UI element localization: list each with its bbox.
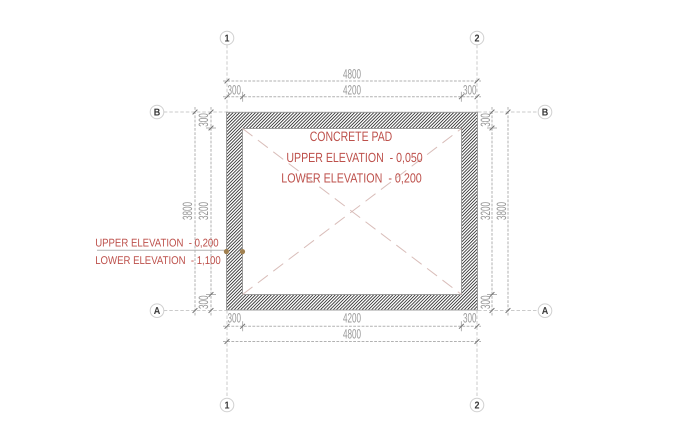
svg-text:LOWER ELEVATION - 0,200: LOWER ELEVATION - 0,200 (281, 170, 422, 185)
svg-text:3800: 3800 (180, 202, 195, 220)
svg-text:2: 2 (474, 401, 479, 412)
svg-text:300: 300 (228, 311, 242, 326)
svg-text:300: 300 (478, 113, 493, 127)
svg-text:300: 300 (228, 82, 242, 97)
svg-text:4200: 4200 (343, 82, 361, 97)
svg-text:1: 1 (224, 34, 229, 45)
svg-text:300: 300 (196, 113, 211, 127)
svg-text:2: 2 (474, 34, 479, 45)
svg-text:B: B (542, 108, 549, 119)
svg-text:300: 300 (478, 296, 493, 310)
svg-text:UPPER ELEVATION - 0,050: UPPER ELEVATION - 0,050 (286, 150, 422, 165)
svg-text:4800: 4800 (343, 66, 361, 81)
svg-text:A: A (154, 306, 161, 317)
svg-text:B: B (154, 108, 161, 119)
svg-text:3200: 3200 (196, 202, 211, 220)
svg-text:4800: 4800 (343, 327, 361, 342)
svg-text:A: A (542, 306, 549, 317)
svg-text:CONCRETE PAD: CONCRETE PAD (310, 129, 393, 144)
svg-text:300: 300 (196, 296, 211, 310)
svg-text:1: 1 (224, 401, 229, 412)
svg-text:LOWER ELEVATION - 1,100: LOWER ELEVATION - 1,100 (95, 255, 221, 267)
svg-text:3200: 3200 (478, 202, 493, 220)
svg-text:300: 300 (463, 311, 477, 326)
svg-text:3800: 3800 (494, 202, 509, 220)
svg-text:300: 300 (463, 82, 477, 97)
svg-text:4200: 4200 (343, 311, 361, 326)
svg-text:UPPER ELEVATION - 0,200: UPPER ELEVATION - 0,200 (95, 237, 218, 249)
